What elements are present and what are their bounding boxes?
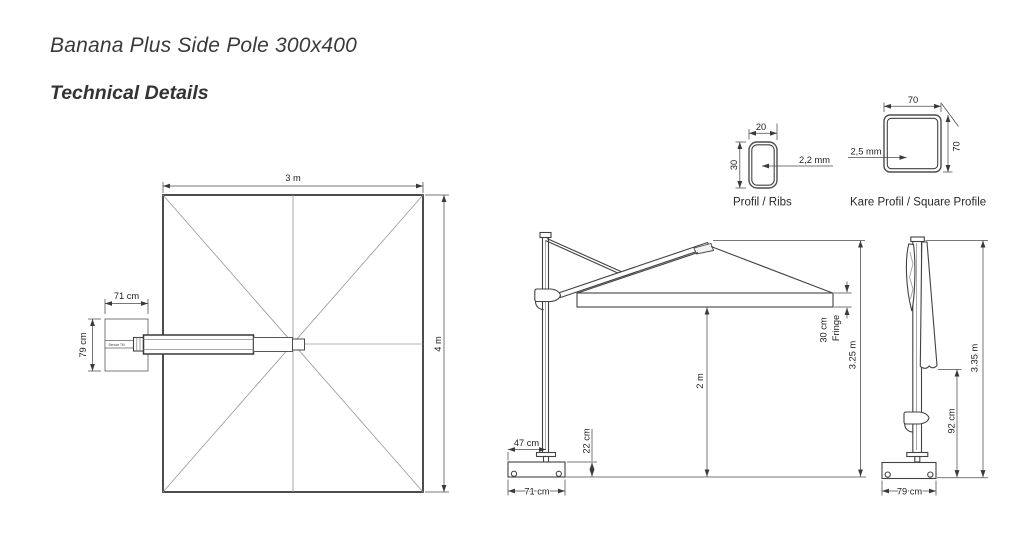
dim-canopy-clearance: 92 cm (938, 370, 962, 478)
dimension-label: 70 (952, 141, 962, 151)
rib-tube-outer (749, 142, 777, 188)
mast-flange (537, 453, 556, 457)
dim-base-offset-width: 71 cm (105, 291, 148, 314)
dim-base-offset-depth: 79 cm (78, 319, 101, 371)
technical-sheet: Banana Plus Side Pole 300x400 Technical … (0, 0, 1024, 556)
technical-drawing: 3 m 4 m 71 cm 79 (0, 0, 1024, 556)
dimension-label: 70 (908, 95, 918, 105)
mast-cap (911, 237, 925, 242)
side-arm: Service TM (105, 335, 305, 354)
support-strut (547, 239, 627, 275)
canopy-valance (577, 293, 833, 307)
dim-base-height: 22 cm (567, 428, 597, 476)
base-wheel (556, 471, 561, 476)
dimension-label: Fringe (831, 315, 841, 341)
mast-bracket (535, 289, 561, 302)
closed-canopy (920, 242, 937, 368)
dimension-label: 79 cm (78, 332, 88, 358)
dim-rib-height: 30 (729, 142, 746, 188)
dimension-label: 20 (756, 122, 766, 132)
base-wheel (885, 472, 890, 477)
base-wheel (511, 471, 516, 476)
dim-canopy-depth: 4 m (425, 195, 449, 492)
center-hub (293, 339, 305, 350)
dimension-label: 2,5 mm (851, 147, 882, 157)
dimension-label: 71 cm (524, 486, 550, 496)
profile-caption: Profil / Ribs (733, 197, 792, 209)
dim-canopy-width: 3 m (163, 173, 423, 193)
base-wheel (928, 472, 933, 477)
side-view-open: 3.25 m 2 m 30 cm Fringe 47 cm (508, 233, 866, 497)
dimension-label: 30 cm (819, 317, 829, 343)
dim-square-width: 70 (884, 95, 941, 112)
dim-clearance: 2 m (695, 308, 707, 477)
mast-flange (907, 453, 928, 457)
dimension-label: 3.35 m (970, 344, 980, 373)
dimension-label: 30 (729, 160, 739, 170)
dimension-label: 79 cm (897, 486, 923, 496)
arm-outer-tube (144, 335, 254, 354)
plan-view: 3 m 4 m 71 cm 79 (78, 173, 449, 492)
dim-base-width-closed: 79 cm (882, 481, 936, 497)
rib-profile: 20 30 2,2 mm Profil / Ribs (729, 122, 833, 209)
arm-brand-label: Service TM (109, 343, 125, 347)
canopy-roof-right (711, 247, 833, 294)
dimension-label: 47 cm (514, 438, 540, 448)
dim-base-width-open: 71 cm (508, 480, 565, 497)
arm-inner-tube (254, 338, 293, 352)
dimension-label: 2,2 mm (799, 155, 830, 165)
dim-rib-width: 20 (749, 122, 777, 140)
dimension-label: 3 m (285, 173, 301, 183)
dim-square-height: 70 (942, 104, 962, 173)
dimension-label: 3.25 m (848, 341, 858, 370)
dimension-label: 22 cm (582, 428, 592, 454)
dim-pole-inset: 47 cm (508, 438, 546, 461)
dimension-label: 2 m (695, 373, 705, 389)
square-profile: 70 70 2,5 mm Kare Profil / Square Profil… (848, 95, 986, 209)
square-tube-outer (884, 115, 941, 172)
mast-cap (540, 233, 551, 238)
dimension-label: 92 cm (947, 408, 957, 434)
side-view-closed: 79 cm 92 cm 3.35 m (882, 237, 988, 496)
dimension-label: 4 m (433, 336, 443, 352)
dim-fringe: 30 cm Fringe (819, 282, 852, 343)
dimension-label: 71 cm (114, 291, 140, 301)
cantilever-boom (559, 243, 711, 298)
canopy-roof-left (578, 253, 699, 294)
mast-bracket (904, 412, 929, 424)
profile-caption: Kare Profil / Square Profile (850, 197, 986, 209)
